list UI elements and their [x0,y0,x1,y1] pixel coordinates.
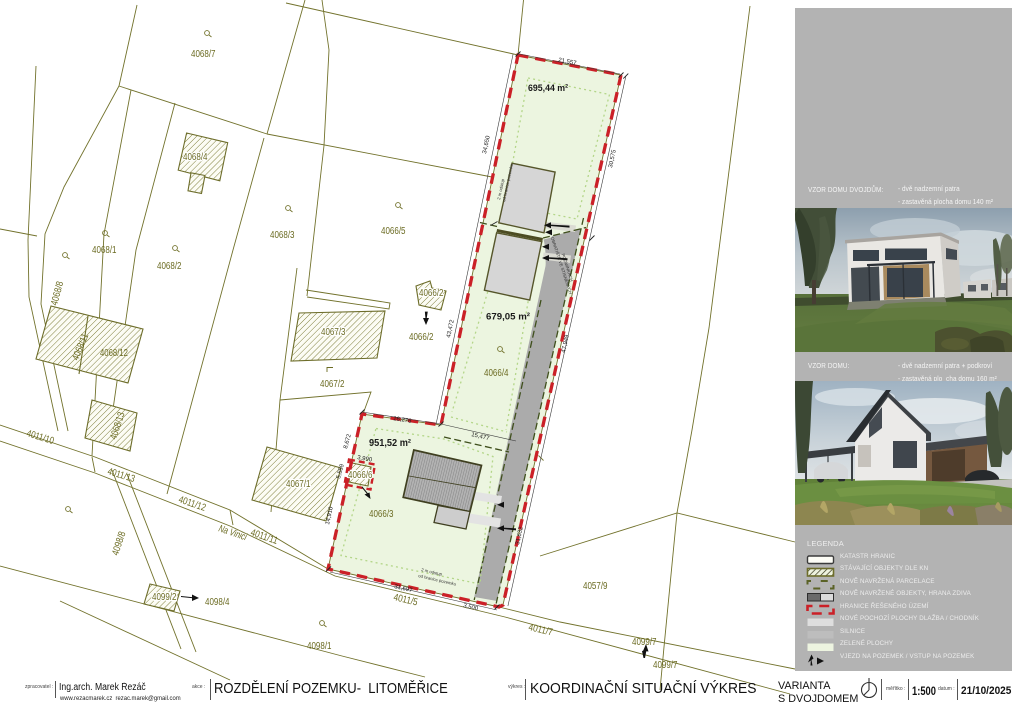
svg-text:4067/1: 4067/1 [286,479,311,490]
svg-text:4011/7: 4011/7 [527,622,554,638]
svg-text:3,500: 3,500 [463,603,480,612]
svg-text:4068/7: 4068/7 [191,49,216,60]
svg-text:695,44 m²: 695,44 m² [528,82,568,93]
svg-text:4068/8: 4068/8 [49,280,66,307]
svg-text:4066/3: 4066/3 [369,509,394,520]
svg-text:951,52 m²: 951,52 m² [369,438,412,449]
svg-text:Na Vinici: Na Vinici [217,523,249,543]
svg-text:4098/4: 4098/4 [205,597,230,608]
svg-text:4068/1: 4068/1 [92,245,117,256]
svg-text:4098/1: 4098/1 [307,641,332,652]
svg-text:8,672: 8,672 [343,433,353,450]
svg-text:4067/3: 4067/3 [321,327,346,338]
svg-text:4099/7: 4099/7 [632,637,657,648]
svg-text:30,575: 30,575 [608,149,618,169]
svg-text:4066/2: 4066/2 [409,332,434,343]
svg-text:4011/13: 4011/13 [106,466,136,485]
svg-text:4099/2: 4099/2 [152,592,177,603]
svg-text:4098/8: 4098/8 [110,530,128,557]
svg-text:4066/6: 4066/6 [348,470,373,481]
svg-text:4099/7: 4099/7 [653,660,678,671]
svg-text:4068/4: 4068/4 [183,152,208,163]
svg-text:4068/12: 4068/12 [100,348,128,359]
svg-text:4011/10: 4011/10 [25,428,55,447]
svg-text:4067/2: 4067/2 [320,379,345,390]
svg-text:4011/5: 4011/5 [392,592,419,608]
svg-text:4066/2: 4066/2 [419,288,444,299]
svg-text:4057/9: 4057/9 [583,581,608,592]
svg-text:4068/3: 4068/3 [270,230,295,241]
svg-text:4066/5: 4066/5 [381,226,406,237]
svg-text:5,559: 5,559 [336,463,346,480]
svg-text:679,05 m²: 679,05 m² [486,311,530,322]
svg-text:4066/4: 4066/4 [484,368,509,379]
svg-text:4068/2: 4068/2 [157,261,182,272]
svg-text:34,650: 34,650 [482,135,492,155]
